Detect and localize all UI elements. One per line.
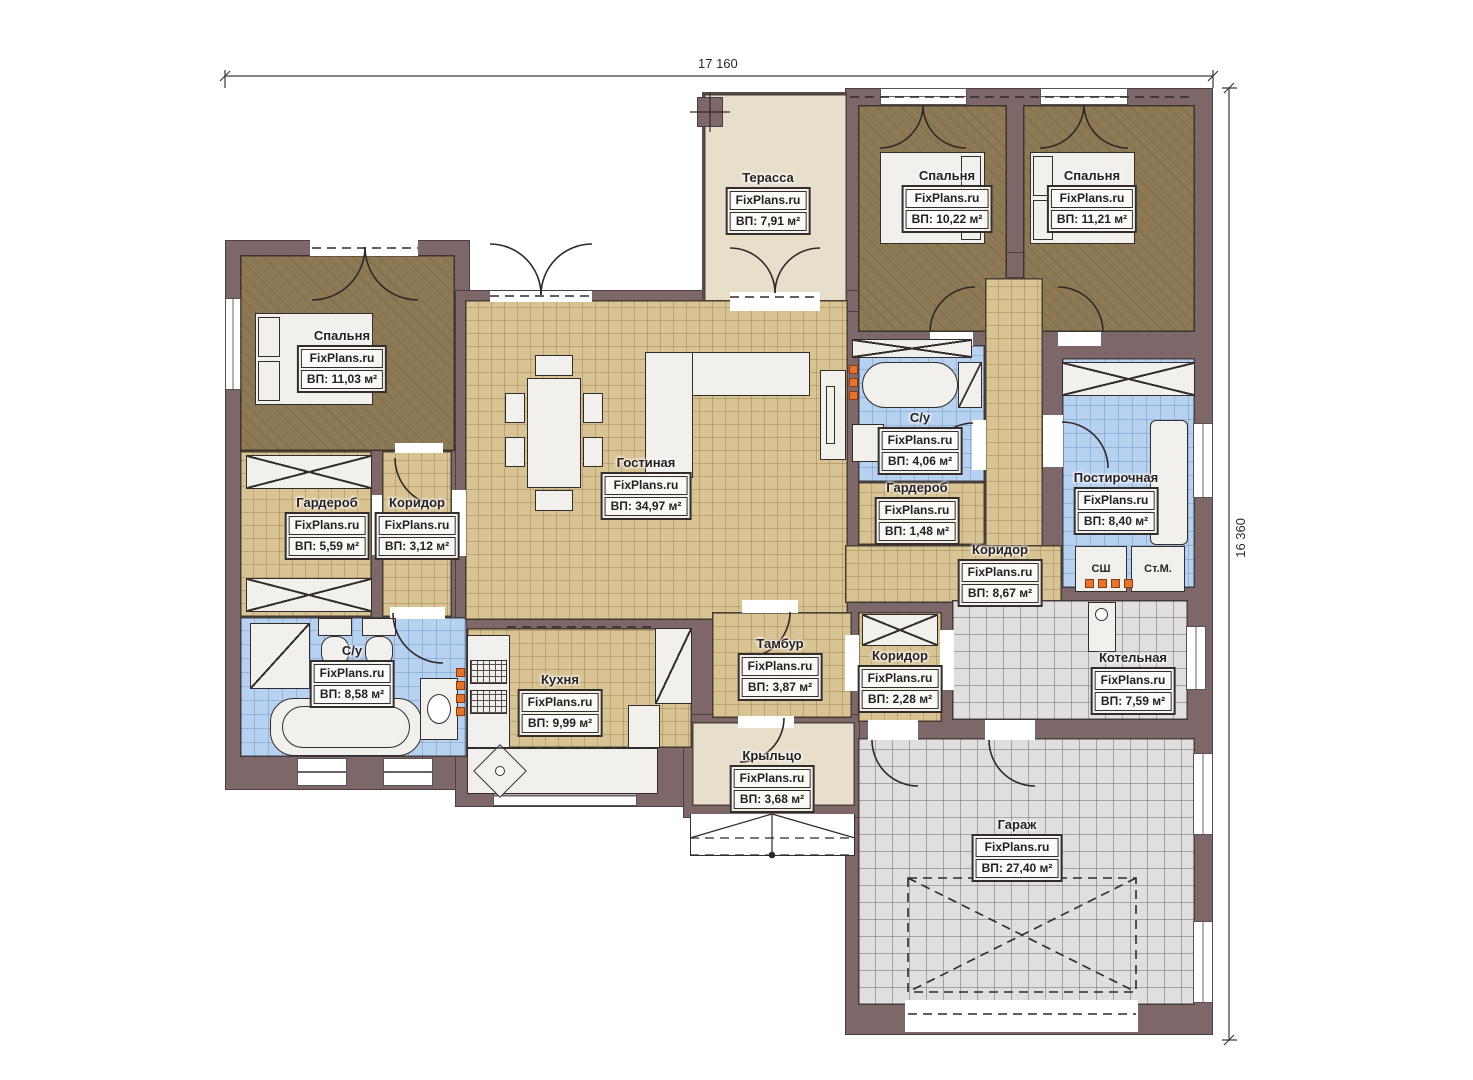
dimension-width: 17 160	[698, 56, 738, 71]
room-label-tambur: Тамбур FixPlans.ruВП: 3,87 м²	[738, 636, 823, 701]
watermark: FixPlans.ru	[289, 516, 366, 535]
room-label-porch: Крыльцо FixPlans.ruВП: 3,68 м²	[730, 748, 815, 813]
room-area: ВП: 34,97 м²	[605, 497, 688, 516]
dining-table	[527, 378, 581, 488]
watermark: FixPlans.ru	[1051, 189, 1133, 208]
closet-laundry	[1062, 362, 1195, 396]
room-name: Тамбур	[738, 636, 823, 651]
room-name: С/у	[878, 410, 963, 425]
tv	[826, 386, 835, 444]
room-label-bedroom-left: Спальня FixPlans.ruВП: 11,03 м²	[297, 328, 387, 393]
door-opening-bedroom-2	[1058, 332, 1101, 346]
room-area: ВП: 11,03 м²	[301, 370, 383, 389]
door-opening-bedroom-left	[310, 240, 418, 256]
room-label-hall-867: Коридор FixPlans.ruВП: 8,67 м²	[958, 542, 1043, 607]
room-name: Спальня	[902, 168, 993, 183]
bathtub-406	[862, 362, 958, 408]
watermark: FixPlans.ru	[522, 693, 599, 712]
room-area: ВП: 1,48 м²	[879, 522, 956, 541]
watermark: FixPlans.ru	[301, 349, 383, 368]
corner-shelf-406	[958, 362, 982, 408]
room-name: Спальня	[1047, 168, 1137, 183]
washing-machine-label: Ст.М.	[1144, 563, 1172, 575]
window-garage-b	[1193, 921, 1213, 1003]
room-area: ВП: 3,68 м²	[734, 790, 811, 809]
room-label-bathroom-858: С/у FixPlans.ruВП: 8,58 м²	[310, 643, 395, 708]
room-area: ВП: 7,59 м²	[1095, 692, 1172, 711]
kitchen-island	[628, 705, 660, 748]
room-name: Крыльцо	[730, 748, 815, 763]
watermark: FixPlans.ru	[882, 431, 959, 450]
watermark: FixPlans.ru	[314, 664, 391, 683]
dimension-height: 16 360	[1233, 518, 1248, 558]
watermark: FixPlans.ru	[730, 191, 807, 210]
room-area: ВП: 11,21 м²	[1051, 210, 1133, 229]
room-label-terrace: Терасса FixPlans.ruВП: 7,91 м²	[726, 170, 811, 235]
room-area: ВП: 27,40 м²	[976, 859, 1059, 878]
room-label-boiler: Котельная FixPlans.ruВП: 7,59 м²	[1091, 650, 1176, 715]
watermark: FixPlans.ru	[1078, 491, 1155, 510]
window-boiler	[1186, 626, 1206, 690]
watermark: FixPlans.ru	[862, 669, 939, 688]
room-label-bedroom-1: Спальня FixPlans.ruВП: 10,22 м²	[902, 168, 993, 233]
room-label-bathroom-406: С/у FixPlans.ruВП: 4,06 м²	[878, 410, 963, 475]
watermark: FixPlans.ru	[379, 516, 456, 535]
room-name: Кухня	[518, 672, 603, 687]
room-area: ВП: 9,99 м²	[522, 714, 599, 733]
window-laundry	[1193, 423, 1213, 498]
room-name: Коридор	[958, 542, 1043, 557]
room-area: ВП: 8,58 м²	[314, 685, 391, 704]
watermark: FixPlans.ru	[605, 476, 688, 495]
stove	[470, 660, 507, 684]
chair	[505, 437, 525, 467]
door-opening-garage-1	[868, 720, 918, 740]
window-bedroom-1	[880, 88, 967, 105]
door-opening-bathroom-406	[972, 420, 986, 470]
drying-machine-label: СШ	[1092, 563, 1111, 575]
door-opening-living-north	[490, 291, 592, 302]
room-name: Котельная	[1091, 650, 1176, 665]
door-opening-corridor-312	[395, 443, 443, 453]
toilet-1	[318, 618, 352, 636]
room-name: Гардероб	[285, 495, 370, 510]
door-opening-laundry	[1043, 415, 1063, 467]
radiator-laundry	[1085, 579, 1133, 588]
room-area: ВП: 3,87 м²	[742, 678, 819, 697]
door-opening-bathroom-858	[390, 607, 445, 619]
watermark: FixPlans.ru	[742, 657, 819, 676]
room-label-bedroom-2: Спальня FixPlans.ruВП: 11,21 м²	[1047, 168, 1137, 233]
chair	[583, 393, 603, 423]
watermark: FixPlans.ru	[1095, 671, 1172, 690]
chair	[535, 490, 573, 511]
room-name: С/у	[310, 643, 395, 658]
door-opening-garage-2	[985, 720, 1035, 740]
closet-wardrobe-bottom	[246, 578, 372, 612]
shelf-bathroom-406	[852, 339, 972, 358]
room-area: ВП: 10,22 м²	[906, 210, 989, 229]
floor-plan: СШ Ст.М.	[0, 0, 1473, 1080]
room-area: ВП: 8,40 м²	[1078, 512, 1155, 531]
washing-machine: Ст.М.	[1131, 546, 1185, 592]
window-garage-a	[1193, 753, 1213, 835]
bathtub-858-inner	[282, 706, 410, 748]
watermark: FixPlans.ru	[734, 769, 811, 788]
room-label-wardrobe-559: Гардероб FixPlans.ruВП: 5,59 м²	[285, 495, 370, 560]
room-area: ВП: 3,12 м²	[379, 537, 456, 556]
room-label-living: Гостиная FixPlans.ruВП: 34,97 м²	[601, 455, 692, 520]
pillow	[258, 361, 280, 401]
room-area: ВП: 5,59 м²	[289, 537, 366, 556]
pillow	[258, 317, 280, 357]
closet-wardrobe-top	[246, 455, 372, 489]
room-label-laundry: Постирочная FixPlans.ruВП: 8,40 м²	[1074, 470, 1159, 535]
watermark: FixPlans.ru	[879, 501, 956, 520]
room-name: Постирочная	[1074, 470, 1159, 485]
toilet-2	[362, 618, 396, 636]
window-bedroom-2	[1040, 88, 1128, 105]
shower-858	[250, 623, 310, 689]
wall-terrace-column	[697, 97, 723, 127]
door-opening-tambur-porch	[738, 716, 794, 728]
room-area: ВП: 8,67 м²	[962, 584, 1039, 603]
boiler-dial	[1095, 608, 1108, 621]
room-area: ВП: 2,28 м²	[862, 690, 939, 709]
watermark: FixPlans.ru	[906, 189, 989, 208]
oven	[470, 690, 507, 714]
room-name: Терасса	[726, 170, 811, 185]
door-opening-tambur-living	[742, 600, 798, 613]
radiator-bathroom-406	[849, 365, 858, 400]
room-label-wardrobe-148: Гардероб FixPlans.ruВП: 1,48 м²	[875, 480, 960, 545]
closet-corridor-228	[862, 614, 938, 646]
room-label-corridor-312: Коридор FixPlans.ruВП: 3,12 м²	[375, 495, 460, 560]
room-name: Гостиная	[601, 455, 692, 470]
room-name: Коридор	[858, 648, 943, 663]
window-bedroom-left	[225, 298, 241, 390]
room-name: Коридор	[375, 495, 460, 510]
room-area: ВП: 4,06 м²	[882, 452, 959, 471]
room-label-corridor-228: Коридор FixPlans.ruВП: 2,28 м²	[858, 648, 943, 713]
sink-858-basin	[427, 694, 451, 724]
kitchen-sink-drain	[495, 766, 505, 776]
room-name: Гараж	[972, 817, 1063, 832]
window-bathroom-858-b	[383, 758, 433, 786]
watermark: FixPlans.ru	[962, 563, 1039, 582]
room-label-kitchen: Кухня FixPlans.ruВП: 9,99 м²	[518, 672, 603, 737]
chair	[535, 355, 573, 376]
garage-gate-opening	[905, 1000, 1138, 1032]
door-opening-terrace	[730, 292, 820, 311]
room-name: Гардероб	[875, 480, 960, 495]
room-area: ВП: 7,91 м²	[730, 212, 807, 231]
watermark: FixPlans.ru	[976, 838, 1059, 857]
radiator-kitchen-wall	[456, 668, 465, 716]
chair	[505, 393, 525, 423]
window-bathroom-858-a	[297, 758, 347, 786]
room-label-garage: Гараж FixPlans.ruВП: 27,40 м²	[972, 817, 1063, 882]
porch-steps	[690, 814, 855, 856]
room-name: Спальня	[297, 328, 387, 343]
kitchen-cabinet-corner	[655, 628, 692, 704]
